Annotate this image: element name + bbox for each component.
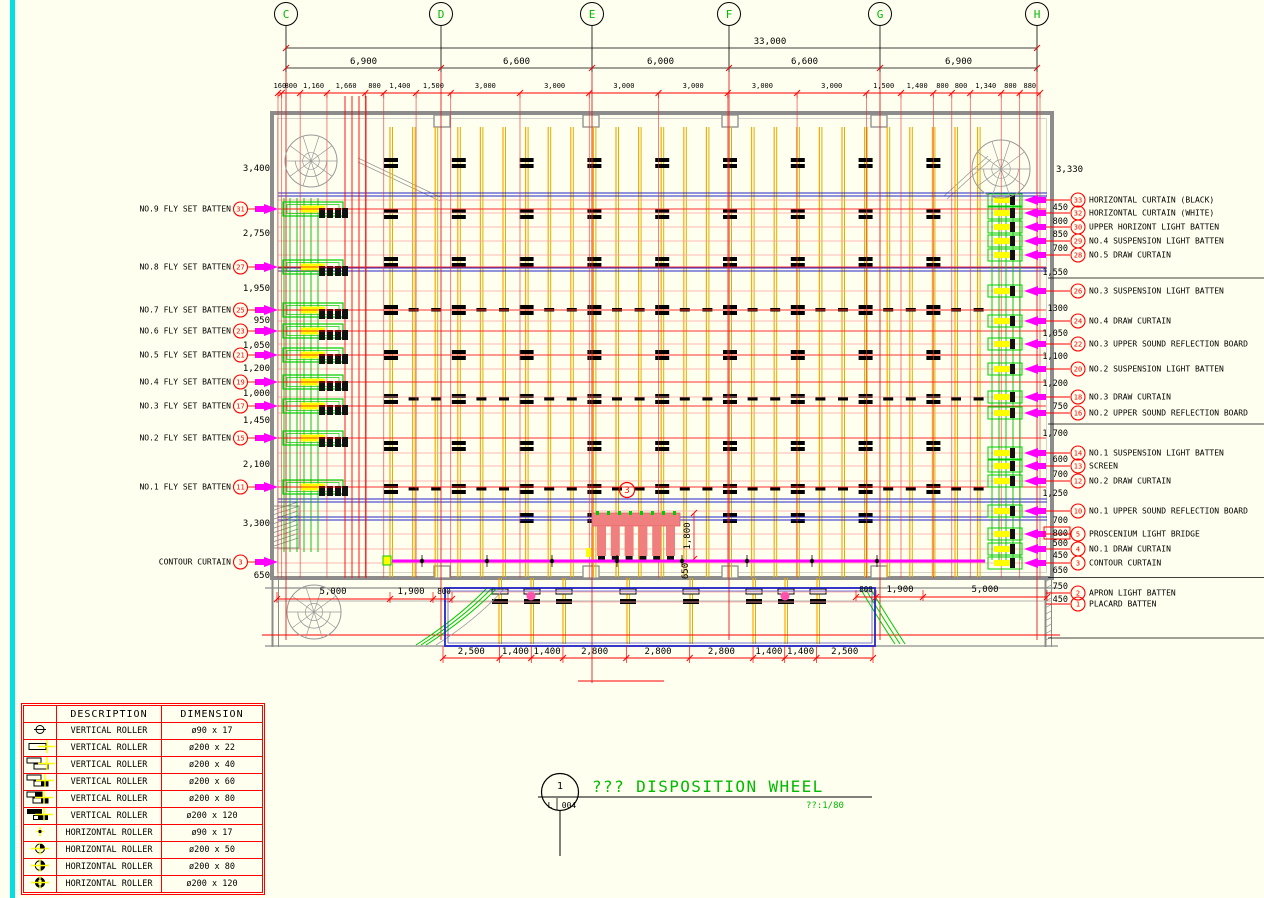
svg-text:L: L <box>548 801 553 810</box>
svg-text:1300: 1300 <box>1048 304 1068 314</box>
svg-text:1,050: 1,050 <box>243 341 270 351</box>
legend-description: HORIZONTAL ROLLER <box>57 825 162 842</box>
curtain-fans <box>416 588 905 645</box>
legend-description: HORIZONTAL ROLLER <box>57 876 162 893</box>
svg-text:NO.1 DRAW CURTAIN: NO.1 DRAW CURTAIN <box>1089 545 1171 554</box>
horizontal-roller-icon <box>24 842 57 859</box>
legend-dimension: ø200 x 60 <box>162 774 263 791</box>
svg-text:1,400: 1,400 <box>787 647 814 657</box>
svg-text:NO.4 FLY SET BATTEN: NO.4 FLY SET BATTEN <box>139 378 231 387</box>
svg-text:27: 27 <box>236 263 244 271</box>
title-block: 1L004??? DISPOSITION WHEEL??:1/80 <box>538 774 872 857</box>
svg-text:1: 1 <box>557 781 563 792</box>
svg-text:1,900: 1,900 <box>397 587 424 597</box>
svg-text:1,550: 1,550 <box>1042 268 1068 278</box>
right-cluster <box>988 194 1022 569</box>
svg-text:PROSCENIUM LIGHT BRIDGE: PROSCENIUM LIGHT BRIDGE <box>1089 530 1200 539</box>
svg-text:700: 700 <box>1053 470 1068 480</box>
svg-text:14: 14 <box>1074 449 1082 457</box>
svg-text:NO.3 FLY SET BATTEN: NO.3 FLY SET BATTEN <box>139 402 231 411</box>
svg-text:800: 800 <box>1053 529 1068 539</box>
legend-row: VERTICAL ROLLERø200 x 60 <box>24 774 263 791</box>
svg-text:800: 800 <box>936 82 949 90</box>
svg-text:NO.9 FLY SET BATTEN: NO.9 FLY SET BATTEN <box>139 205 231 214</box>
svg-text:800: 800 <box>437 587 451 596</box>
svg-text:2,800: 2,800 <box>644 647 671 657</box>
svg-text:1,660: 1,660 <box>336 82 357 90</box>
vertical-roller-icon <box>24 808 57 825</box>
svg-text:6,900: 6,900 <box>945 57 972 67</box>
svg-text:17: 17 <box>236 402 244 410</box>
svg-text:31: 31 <box>236 205 244 213</box>
vertical-roller-icon <box>24 723 57 740</box>
leader-arrows <box>255 195 1046 568</box>
svg-text:800: 800 <box>285 82 298 90</box>
legend-dimension: ø200 x 22 <box>162 740 263 757</box>
svg-text:2,100: 2,100 <box>243 460 270 470</box>
svg-text:750: 750 <box>1053 582 1068 592</box>
svg-text:3,000: 3,000 <box>613 82 634 90</box>
svg-text:4: 4 <box>1076 545 1080 553</box>
svg-text:1,200: 1,200 <box>1042 379 1068 389</box>
svg-text:D: D <box>438 8 445 21</box>
legend-dimension: ø200 x 80 <box>162 791 263 808</box>
svg-text:H: H <box>1034 8 1041 21</box>
svg-text:13: 13 <box>1074 462 1082 470</box>
right-labels: 3,33033HORIZONTAL CURTAIN (BLACK)32HORIZ… <box>1042 165 1248 611</box>
vertical-roller-icon <box>24 791 57 808</box>
svg-text:3,000: 3,000 <box>475 82 496 90</box>
legend-row: HORIZONTAL ROLLERø200 x 50 <box>24 842 263 859</box>
svg-text:F: F <box>726 8 733 21</box>
svg-text:NO.7 FLY SET BATTEN: NO.7 FLY SET BATTEN <box>139 306 231 315</box>
svg-text:850: 850 <box>1053 230 1068 240</box>
svg-text:G: G <box>877 8 884 21</box>
svg-text:NO.1 UPPER SOUND REFLECTION BO: NO.1 UPPER SOUND REFLECTION BOARD <box>1089 507 1248 516</box>
svg-text:HORIZONTAL CURTAIN (WHITE): HORIZONTAL CURTAIN (WHITE) <box>1089 209 1214 218</box>
svg-text:33: 33 <box>1074 196 1082 204</box>
svg-text:5: 5 <box>1076 530 1080 538</box>
svg-text:24: 24 <box>1074 317 1082 325</box>
svg-text:UPPER HORIZONT LIGHT BATTEN: UPPER HORIZONT LIGHT BATTEN <box>1089 223 1219 232</box>
legend-row: VERTICAL ROLLERø200 x 40 <box>24 757 263 774</box>
svg-text:004: 004 <box>562 801 577 810</box>
svg-text:33,000: 33,000 <box>754 37 787 47</box>
svg-text:2,500: 2,500 <box>458 647 485 657</box>
svg-text:1,100: 1,100 <box>1042 352 1068 362</box>
svg-text:NO.4 DRAW CURTAIN: NO.4 DRAW CURTAIN <box>1089 317 1171 326</box>
legend-description: VERTICAL ROLLER <box>57 808 162 825</box>
svg-text:1,340: 1,340 <box>975 82 996 90</box>
svg-text:16: 16 <box>1074 409 1082 417</box>
svg-text:26: 26 <box>1074 287 1082 295</box>
horizontal-roller-icon <box>24 876 57 893</box>
svg-text:950: 950 <box>254 316 270 326</box>
svg-text:CONTOUR CURTAIN: CONTOUR CURTAIN <box>159 558 231 567</box>
svg-text:3,000: 3,000 <box>544 82 565 90</box>
legend-row: VERTICAL ROLLERø90 x 17 <box>24 723 263 740</box>
legend-row: HORIZONTAL ROLLERø200 x 120 <box>24 876 263 893</box>
legend-dimension: ø200 x 120 <box>162 876 263 893</box>
svg-text:6,600: 6,600 <box>791 57 818 67</box>
svg-text:500: 500 <box>1053 539 1068 549</box>
svg-text:800: 800 <box>1053 217 1068 227</box>
svg-text:NO.2 SUSPENSION LIGHT BATTEN: NO.2 SUSPENSION LIGHT BATTEN <box>1089 365 1224 374</box>
svg-text:1,950: 1,950 <box>243 284 270 294</box>
svg-text:23: 23 <box>236 327 244 335</box>
svg-text:6,600: 6,600 <box>503 57 530 67</box>
legend-description: HORIZONTAL ROLLER <box>57 842 162 859</box>
legend-dimension-header: DIMENSION <box>162 706 263 723</box>
svg-text:NO.2 UPPER SOUND REFLECTION BO: NO.2 UPPER SOUND REFLECTION BOARD <box>1089 409 1248 418</box>
svg-text:1,450: 1,450 <box>243 416 270 426</box>
legend-dimension: ø90 x 17 <box>162 723 263 740</box>
svg-text:2,800: 2,800 <box>581 647 608 657</box>
horizontal-roller-icon <box>24 859 57 876</box>
svg-text:5,000: 5,000 <box>971 585 998 595</box>
svg-text:2,750: 2,750 <box>243 229 270 239</box>
bottom-dimensions: 2,5001,4001,4002,8002,8002,8001,4001,400… <box>274 585 1050 663</box>
svg-text:3,000: 3,000 <box>752 82 773 90</box>
legend-description-header: DESCRIPTION <box>57 706 162 723</box>
legend-row: VERTICAL ROLLERø200 x 120 <box>24 808 263 825</box>
legend-dimension: ø200 x 120 <box>162 808 263 825</box>
legend-description: VERTICAL ROLLER <box>57 757 162 774</box>
svg-text:2: 2 <box>1076 589 1080 597</box>
svg-text:NO.1 FLY SET BATTEN: NO.1 FLY SET BATTEN <box>139 483 231 492</box>
svg-text:800: 800 <box>859 585 873 594</box>
legend-dimension: ø90 x 17 <box>162 825 263 842</box>
legend-dimension: ø200 x 40 <box>162 757 263 774</box>
svg-text:30: 30 <box>1074 223 1082 231</box>
svg-text:??:1/80: ??:1/80 <box>806 801 844 811</box>
svg-text:E: E <box>589 8 596 21</box>
svg-text:22: 22 <box>1074 340 1082 348</box>
vertical-roller-icon <box>24 774 57 791</box>
legend-description: VERTICAL ROLLER <box>57 740 162 757</box>
svg-text:880: 880 <box>1024 82 1037 90</box>
svg-text:650: 650 <box>1053 566 1068 576</box>
svg-text:NO.3 UPPER SOUND REFLECTION BO: NO.3 UPPER SOUND REFLECTION BOARD <box>1089 340 1248 349</box>
svg-text:1,400: 1,400 <box>755 647 782 657</box>
svg-text:NO.6 FLY SET BATTEN: NO.6 FLY SET BATTEN <box>139 327 231 336</box>
svg-text:??? DISPOSITION WHEEL: ??? DISPOSITION WHEEL <box>592 777 824 796</box>
svg-text:800: 800 <box>955 82 968 90</box>
roller-legend-table: DESCRIPTION DIMENSION VERTICAL ROLLERø90… <box>23 705 263 893</box>
svg-text:800: 800 <box>1004 82 1017 90</box>
left-labels: NO.9 FLY SET BATTEN31NO.8 FLY SET BATTEN… <box>139 164 270 581</box>
svg-text:3: 3 <box>1076 559 1080 567</box>
svg-text:APRON LIGHT BATTEN: APRON LIGHT BATTEN <box>1089 589 1176 598</box>
apron-pit <box>445 588 875 646</box>
legend-description: HORIZONTAL ROLLER <box>57 859 162 876</box>
svg-text:11: 11 <box>236 483 244 491</box>
legend-dimension: ø200 x 80 <box>162 859 263 876</box>
svg-text:1,400: 1,400 <box>907 82 928 90</box>
svg-text:650: 650 <box>254 571 270 581</box>
svg-text:25: 25 <box>236 306 244 314</box>
legend-symbol-header <box>24 706 57 723</box>
svg-text:CONTOUR CURTAIN: CONTOUR CURTAIN <box>1089 559 1161 568</box>
svg-text:450: 450 <box>1053 595 1068 605</box>
svg-text:20: 20 <box>1074 365 1082 373</box>
legend-row: VERTICAL ROLLERø200 x 22 <box>24 740 263 757</box>
legend-row: HORIZONTAL ROLLERø200 x 80 <box>24 859 263 876</box>
svg-text:1,700: 1,700 <box>1042 429 1068 439</box>
svg-text:1,000: 1,000 <box>243 389 270 399</box>
svg-text:1,250: 1,250 <box>1042 489 1068 499</box>
svg-text:SCREEN: SCREEN <box>1089 462 1118 471</box>
svg-text:800: 800 <box>368 82 381 90</box>
svg-text:NO.3 DRAW CURTAIN: NO.3 DRAW CURTAIN <box>1089 393 1171 402</box>
legend-dimension: ø200 x 50 <box>162 842 263 859</box>
legend-description: VERTICAL ROLLER <box>57 774 162 791</box>
svg-text:1,900: 1,900 <box>886 585 913 595</box>
svg-text:3,400: 3,400 <box>243 164 270 174</box>
svg-text:6,000: 6,000 <box>647 57 674 67</box>
svg-text:650: 650 <box>681 563 691 579</box>
svg-text:1,400: 1,400 <box>389 82 410 90</box>
svg-text:18: 18 <box>1074 393 1082 401</box>
svg-text:NO.5 FLY SET BATTEN: NO.5 FLY SET BATTEN <box>139 351 231 360</box>
svg-text:3,000: 3,000 <box>683 82 704 90</box>
svg-text:1: 1 <box>1076 600 1080 608</box>
svg-text:NO.5 DRAW CURTAIN: NO.5 DRAW CURTAIN <box>1089 251 1171 260</box>
legend-row: HORIZONTAL ROLLERø90 x 17 <box>24 825 263 842</box>
svg-text:1,050: 1,050 <box>1042 329 1068 339</box>
svg-text:1,200: 1,200 <box>243 364 270 374</box>
svg-text:NO.2 DRAW CURTAIN: NO.2 DRAW CURTAIN <box>1089 477 1171 486</box>
svg-text:1,400: 1,400 <box>502 647 529 657</box>
svg-text:NO.2 FLY SET BATTEN: NO.2 FLY SET BATTEN <box>139 434 231 443</box>
svg-text:NO.3 SUSPENSION LIGHT BATTEN: NO.3 SUSPENSION LIGHT BATTEN <box>1089 287 1224 296</box>
svg-text:3: 3 <box>624 486 629 496</box>
svg-text:29: 29 <box>1074 237 1082 245</box>
svg-text:NO.8 FLY SET BATTEN: NO.8 FLY SET BATTEN <box>139 263 231 272</box>
svg-text:2,500: 2,500 <box>831 647 858 657</box>
svg-text:1,500: 1,500 <box>423 82 444 90</box>
svg-text:700: 700 <box>1053 244 1068 254</box>
svg-text:3: 3 <box>238 558 242 566</box>
svg-text:3,330: 3,330 <box>1056 165 1083 175</box>
legend-row: VERTICAL ROLLERø200 x 80 <box>24 791 263 808</box>
svg-text:2,800: 2,800 <box>708 647 735 657</box>
svg-text:1,500: 1,500 <box>873 82 894 90</box>
svg-text:1,400: 1,400 <box>534 647 561 657</box>
svg-text:HORIZONTAL CURTAIN (BLACK): HORIZONTAL CURTAIN (BLACK) <box>1089 196 1214 205</box>
svg-text:6,900: 6,900 <box>350 57 377 67</box>
roller-legend: DESCRIPTION DIMENSION VERTICAL ROLLERø90… <box>23 705 263 893</box>
legend-description: VERTICAL ROLLER <box>57 791 162 808</box>
vertical-roller-icon <box>24 740 57 757</box>
svg-text:3,000: 3,000 <box>821 82 842 90</box>
legend-header-row: DESCRIPTION DIMENSION <box>24 706 263 723</box>
svg-text:450: 450 <box>1053 551 1068 561</box>
svg-text:NO.4 SUSPENSION LIGHT BATTEN: NO.4 SUSPENSION LIGHT BATTEN <box>1089 237 1224 246</box>
svg-text:NO.1 SUSPENSION LIGHT BATTEN: NO.1 SUSPENSION LIGHT BATTEN <box>1089 449 1224 458</box>
svg-text:28: 28 <box>1074 251 1082 259</box>
svg-text:700: 700 <box>1053 516 1068 526</box>
svg-text:19: 19 <box>236 378 244 386</box>
svg-text:600: 600 <box>1053 455 1068 465</box>
svg-text:PLACARD BATTEN: PLACARD BATTEN <box>1089 600 1157 609</box>
svg-text:750: 750 <box>1053 402 1068 412</box>
svg-text:10: 10 <box>1074 507 1082 515</box>
svg-text:21: 21 <box>236 351 244 359</box>
svg-text:1,160: 1,160 <box>303 82 324 90</box>
svg-text:15: 15 <box>236 434 244 442</box>
svg-text:12: 12 <box>1074 477 1082 485</box>
cad-sheet: CDEFGH33,0006,9006,6006,0006,6006,900160… <box>0 0 1264 898</box>
horizontal-roller-icon <box>24 825 57 842</box>
svg-text:5,000: 5,000 <box>319 587 346 597</box>
svg-text:32: 32 <box>1074 209 1082 217</box>
svg-text:450: 450 <box>1053 203 1068 213</box>
svg-text:1,800: 1,800 <box>683 522 693 549</box>
legend-description: VERTICAL ROLLER <box>57 723 162 740</box>
svg-text:3,300: 3,300 <box>243 519 270 529</box>
vertical-roller-icon <box>24 757 57 774</box>
svg-text:C: C <box>283 8 290 21</box>
